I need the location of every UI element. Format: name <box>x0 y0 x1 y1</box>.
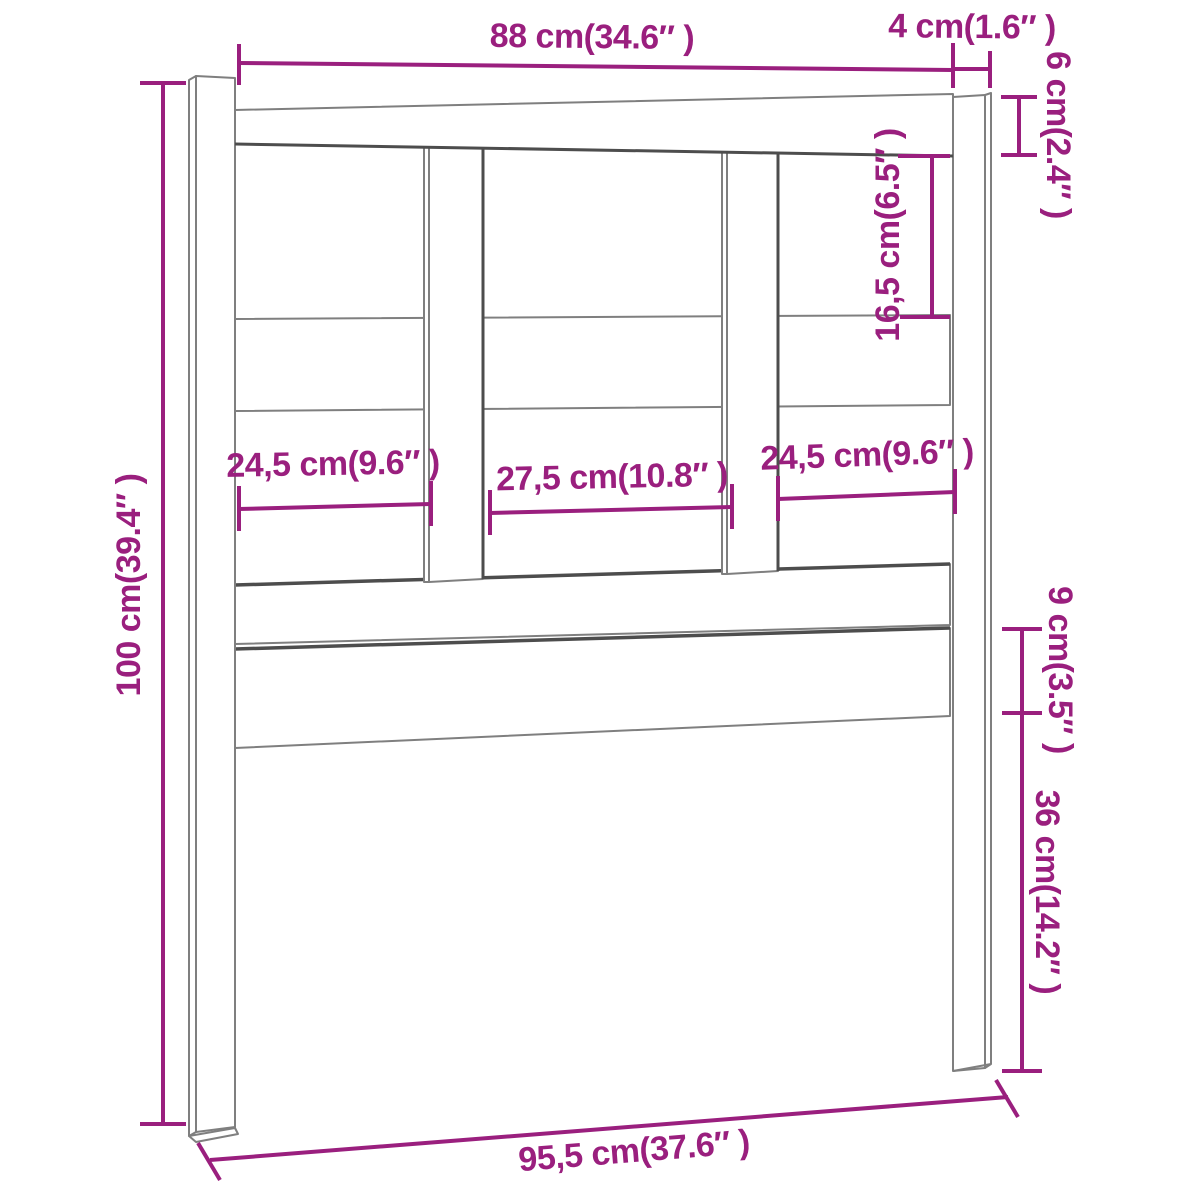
dim-total-width-tick-left <box>198 1143 220 1180</box>
dim-right-opening-line <box>778 492 955 499</box>
dim-top-width-line <box>239 63 953 70</box>
left-post <box>196 76 235 1132</box>
dim-left-opening-line <box>239 504 431 509</box>
left-post-side-face <box>189 76 196 1136</box>
dim-label-right-post-width: 4 cm(1.6″ ) <box>888 9 1056 45</box>
dim-center-opening-line <box>490 507 732 513</box>
dim-label-bottom-board-height: 9 cm(3.5″ ) <box>1043 586 1077 754</box>
slat-left <box>429 146 483 582</box>
dim-label-left-opening-width: 24,5 cm(9.6″ ) <box>226 445 440 483</box>
dim-label-top-width: 88 cm(34.6″ ) <box>490 19 695 55</box>
dim-label-right-opening-width: 24,5 cm(9.6″ ) <box>760 434 974 475</box>
dim-label-center-opening-width: 27,5 cm(10.8″ ) <box>496 458 728 497</box>
dim-label-top-rail-height: 6 cm(2.4″ ) <box>1041 51 1075 219</box>
headboard-line-art <box>0 0 1200 1200</box>
dim-label-total-height: 100 cm(39.4″ ) <box>112 474 146 697</box>
right-post <box>953 95 985 1071</box>
middle-rail <box>235 315 950 411</box>
dim-label-upper-opening-height: 16,5 cm(6.5″ ) <box>871 128 905 341</box>
right-post-side-face <box>985 93 991 1068</box>
slat-right <box>727 151 778 574</box>
dim-label-bottom-clearance-height: 36 cm(14.2″ ) <box>1030 790 1064 994</box>
headboard-dimension-diagram: 88 cm(34.6″ ) 4 cm(1.6″ ) 6 cm(2.4″ ) 16… <box>0 0 1200 1200</box>
